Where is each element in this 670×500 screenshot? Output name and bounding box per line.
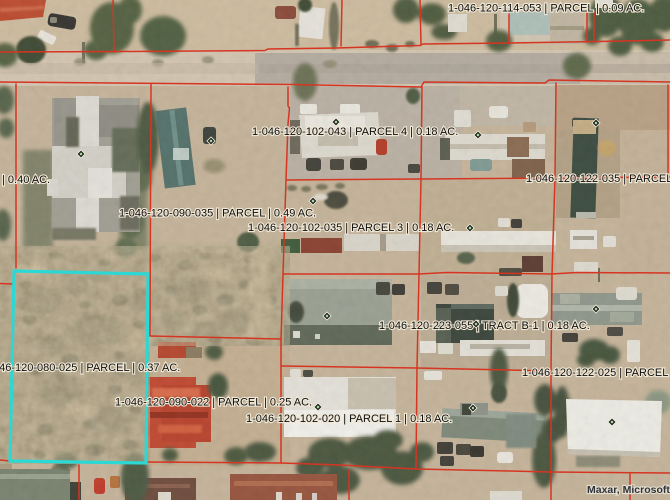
svg-text:1-046-120-102-043 | PARCEL 4 |: 1-046-120-102-043 | PARCEL 4 | 0.18 AC.: [252, 126, 458, 138]
svg-text:1-046-120-114-053 | PARCEL | 0: 1-046-120-114-053 | PARCEL | 0.09 AC.: [448, 3, 644, 15]
svg-text:1-046-120-223-055 | TRACT B-1: 1-046-120-223-055 | TRACT B-1 | 0.18 AC.: [379, 320, 590, 332]
svg-text:Maxar, Microsoft: Maxar, Microsoft: [587, 484, 670, 496]
svg-text:1-046-120-102-035 | PARCEL 3 |: 1-046-120-102-035 | PARCEL 3 | 0.18 AC.: [248, 222, 454, 234]
svg-text:1-046-120-122-035 | PARCEL |: 1-046-120-122-035 | PARCEL |: [526, 173, 670, 185]
svg-text:1-046-120-122-025 | PARCEL |: 1-046-120-122-025 | PARCEL |: [522, 367, 670, 379]
svg-text:| 0.40 AC.: | 0.40 AC.: [2, 174, 50, 186]
svg-text:1-046-120-102-020 | PARCEL 1 |: 1-046-120-102-020 | PARCEL 1 | 0.18 AC.: [246, 413, 452, 425]
svg-text:1-046-120-090-022 | PARCEL | 0: 1-046-120-090-022 | PARCEL | 0.25 AC.: [115, 397, 312, 409]
svg-text:1-046-120-090-035 | PARCEL | 0: 1-046-120-090-035 | PARCEL | 0.49 AC.: [119, 208, 316, 220]
svg-text:046-120-080-025 | PARCEL | 0.3: 046-120-080-025 | PARCEL | 0.37 AC.: [0, 362, 180, 374]
